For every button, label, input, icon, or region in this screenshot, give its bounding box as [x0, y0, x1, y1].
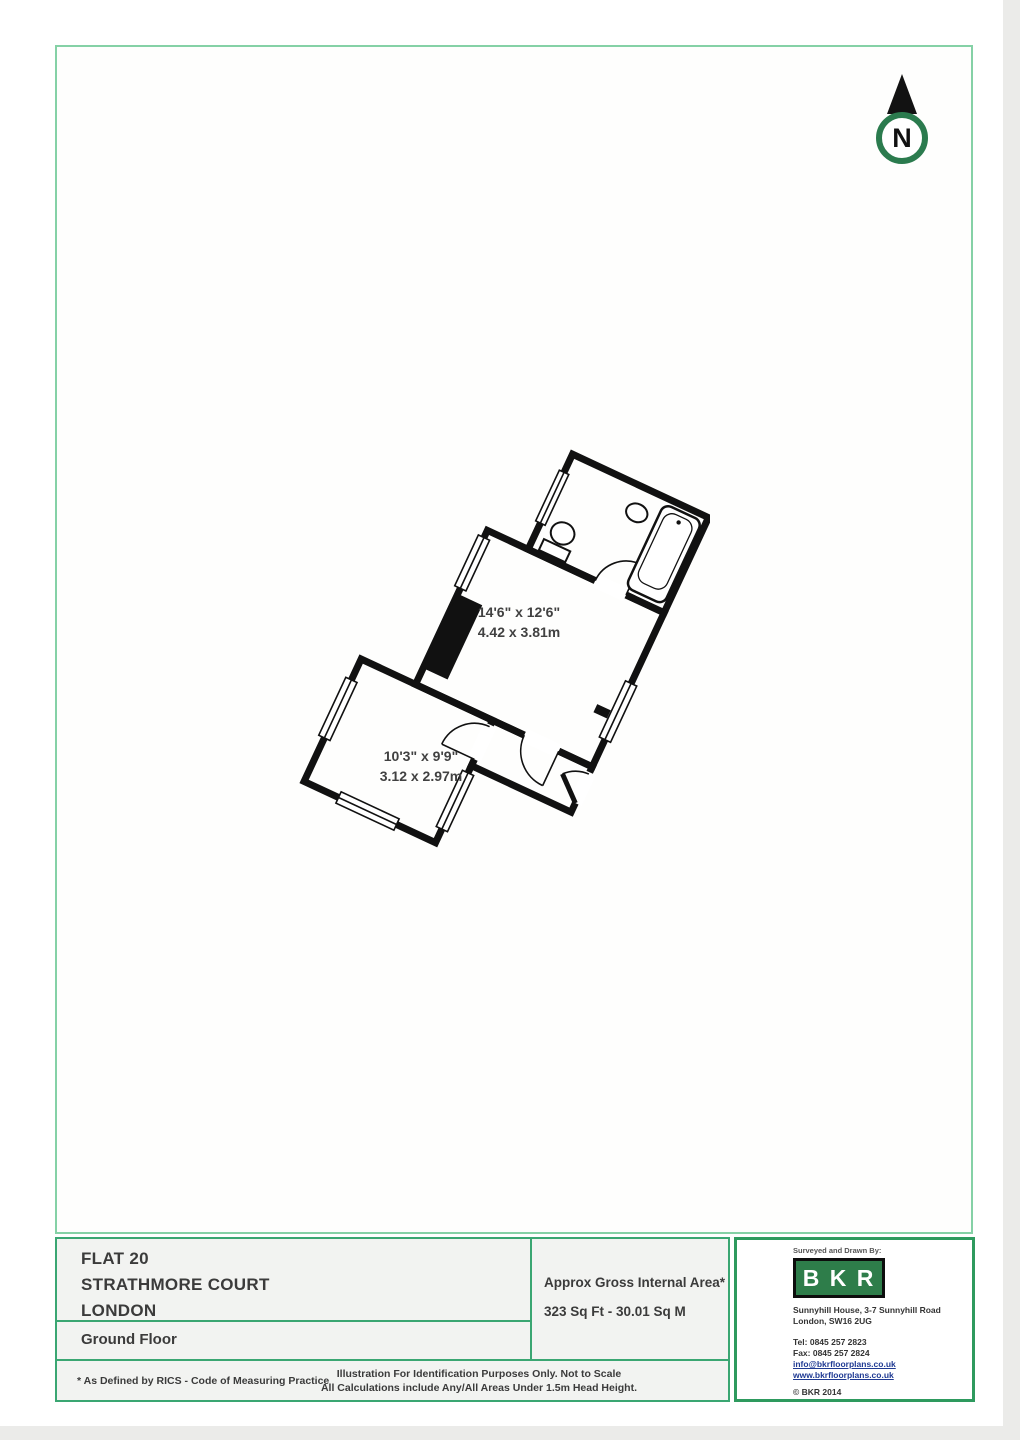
bedroom-room-label: 10'3" x 9'9" 3.12 x 2.97m: [380, 746, 463, 786]
surveyor-website-link[interactable]: www.bkrfloorplans.co.uk: [793, 1370, 972, 1381]
surveyor-address: Sunnyhill House, 3-7 Sunnyhill Road Lond…: [793, 1305, 972, 1327]
basin: [623, 500, 651, 526]
surveyor-fax: Fax: 0845 257 2824: [793, 1348, 972, 1359]
surveyor-copyright: © BKR 2014: [793, 1387, 972, 1397]
surveyor-brand-box: Surveyed and Drawn By: B K R Sunnyhill H…: [734, 1237, 975, 1402]
bedroom-dims-imperial: 10'3" x 9'9": [380, 746, 463, 766]
north-symbol: N: [876, 112, 928, 164]
reception-dims-metric: 4.42 x 3.81m: [478, 622, 561, 642]
disclaimer-box: * As Defined by RICS - Code of Measuring…: [55, 1359, 730, 1402]
disclaimer-line1: Illustration For Identification Purposes…: [242, 1367, 716, 1381]
surveyor-tel: Tel: 0845 257 2823: [793, 1337, 972, 1348]
north-compass: N: [875, 74, 929, 164]
area-title: Approx Gross Internal Area*: [532, 1239, 728, 1290]
north-arrow-icon: [887, 74, 917, 114]
surveyed-by-label: Surveyed and Drawn By:: [793, 1246, 972, 1255]
area-info-box: Approx Gross Internal Area* 323 Sq Ft - …: [530, 1237, 730, 1361]
bkr-logo: B K R: [793, 1258, 885, 1298]
property-info-box: FLAT 20 STRATHMORE COURT LONDON Ground F…: [55, 1237, 532, 1361]
chimney-breast: [423, 594, 482, 680]
property-line2: STRATHMORE COURT: [81, 1272, 530, 1298]
surveyor-contact: Tel: 0845 257 2823 Fax: 0845 257 2824: [793, 1337, 972, 1359]
reception-dims-imperial: 14'6" x 12'6": [478, 602, 561, 622]
surveyor-email-link[interactable]: info@bkrfloorplans.co.uk: [793, 1359, 972, 1370]
reception-room-label: 14'6" x 12'6" 4.42 x 3.81m: [478, 602, 561, 642]
disclaimer-text: Illustration For Identification Purposes…: [242, 1367, 716, 1395]
property-address: FLAT 20 STRATHMORE COURT LONDON: [57, 1239, 530, 1324]
surveyor-address-line1: Sunnyhill House, 3-7 Sunnyhill Road: [793, 1305, 972, 1316]
property-line1: FLAT 20: [81, 1246, 530, 1272]
disclaimer-line2: All Calculations include Any/All Areas U…: [242, 1381, 716, 1395]
area-value: 323 Sq Ft - 30.01 Sq M: [532, 1290, 728, 1319]
page-edge-right: [1003, 0, 1020, 1440]
surveyor-address-line2: London, SW16 2UG: [793, 1316, 972, 1327]
page-edge-bottom: [0, 1426, 1020, 1440]
bedroom-dims-metric: 3.12 x 2.97m: [380, 766, 463, 786]
floor-name: Ground Floor: [57, 1320, 530, 1359]
